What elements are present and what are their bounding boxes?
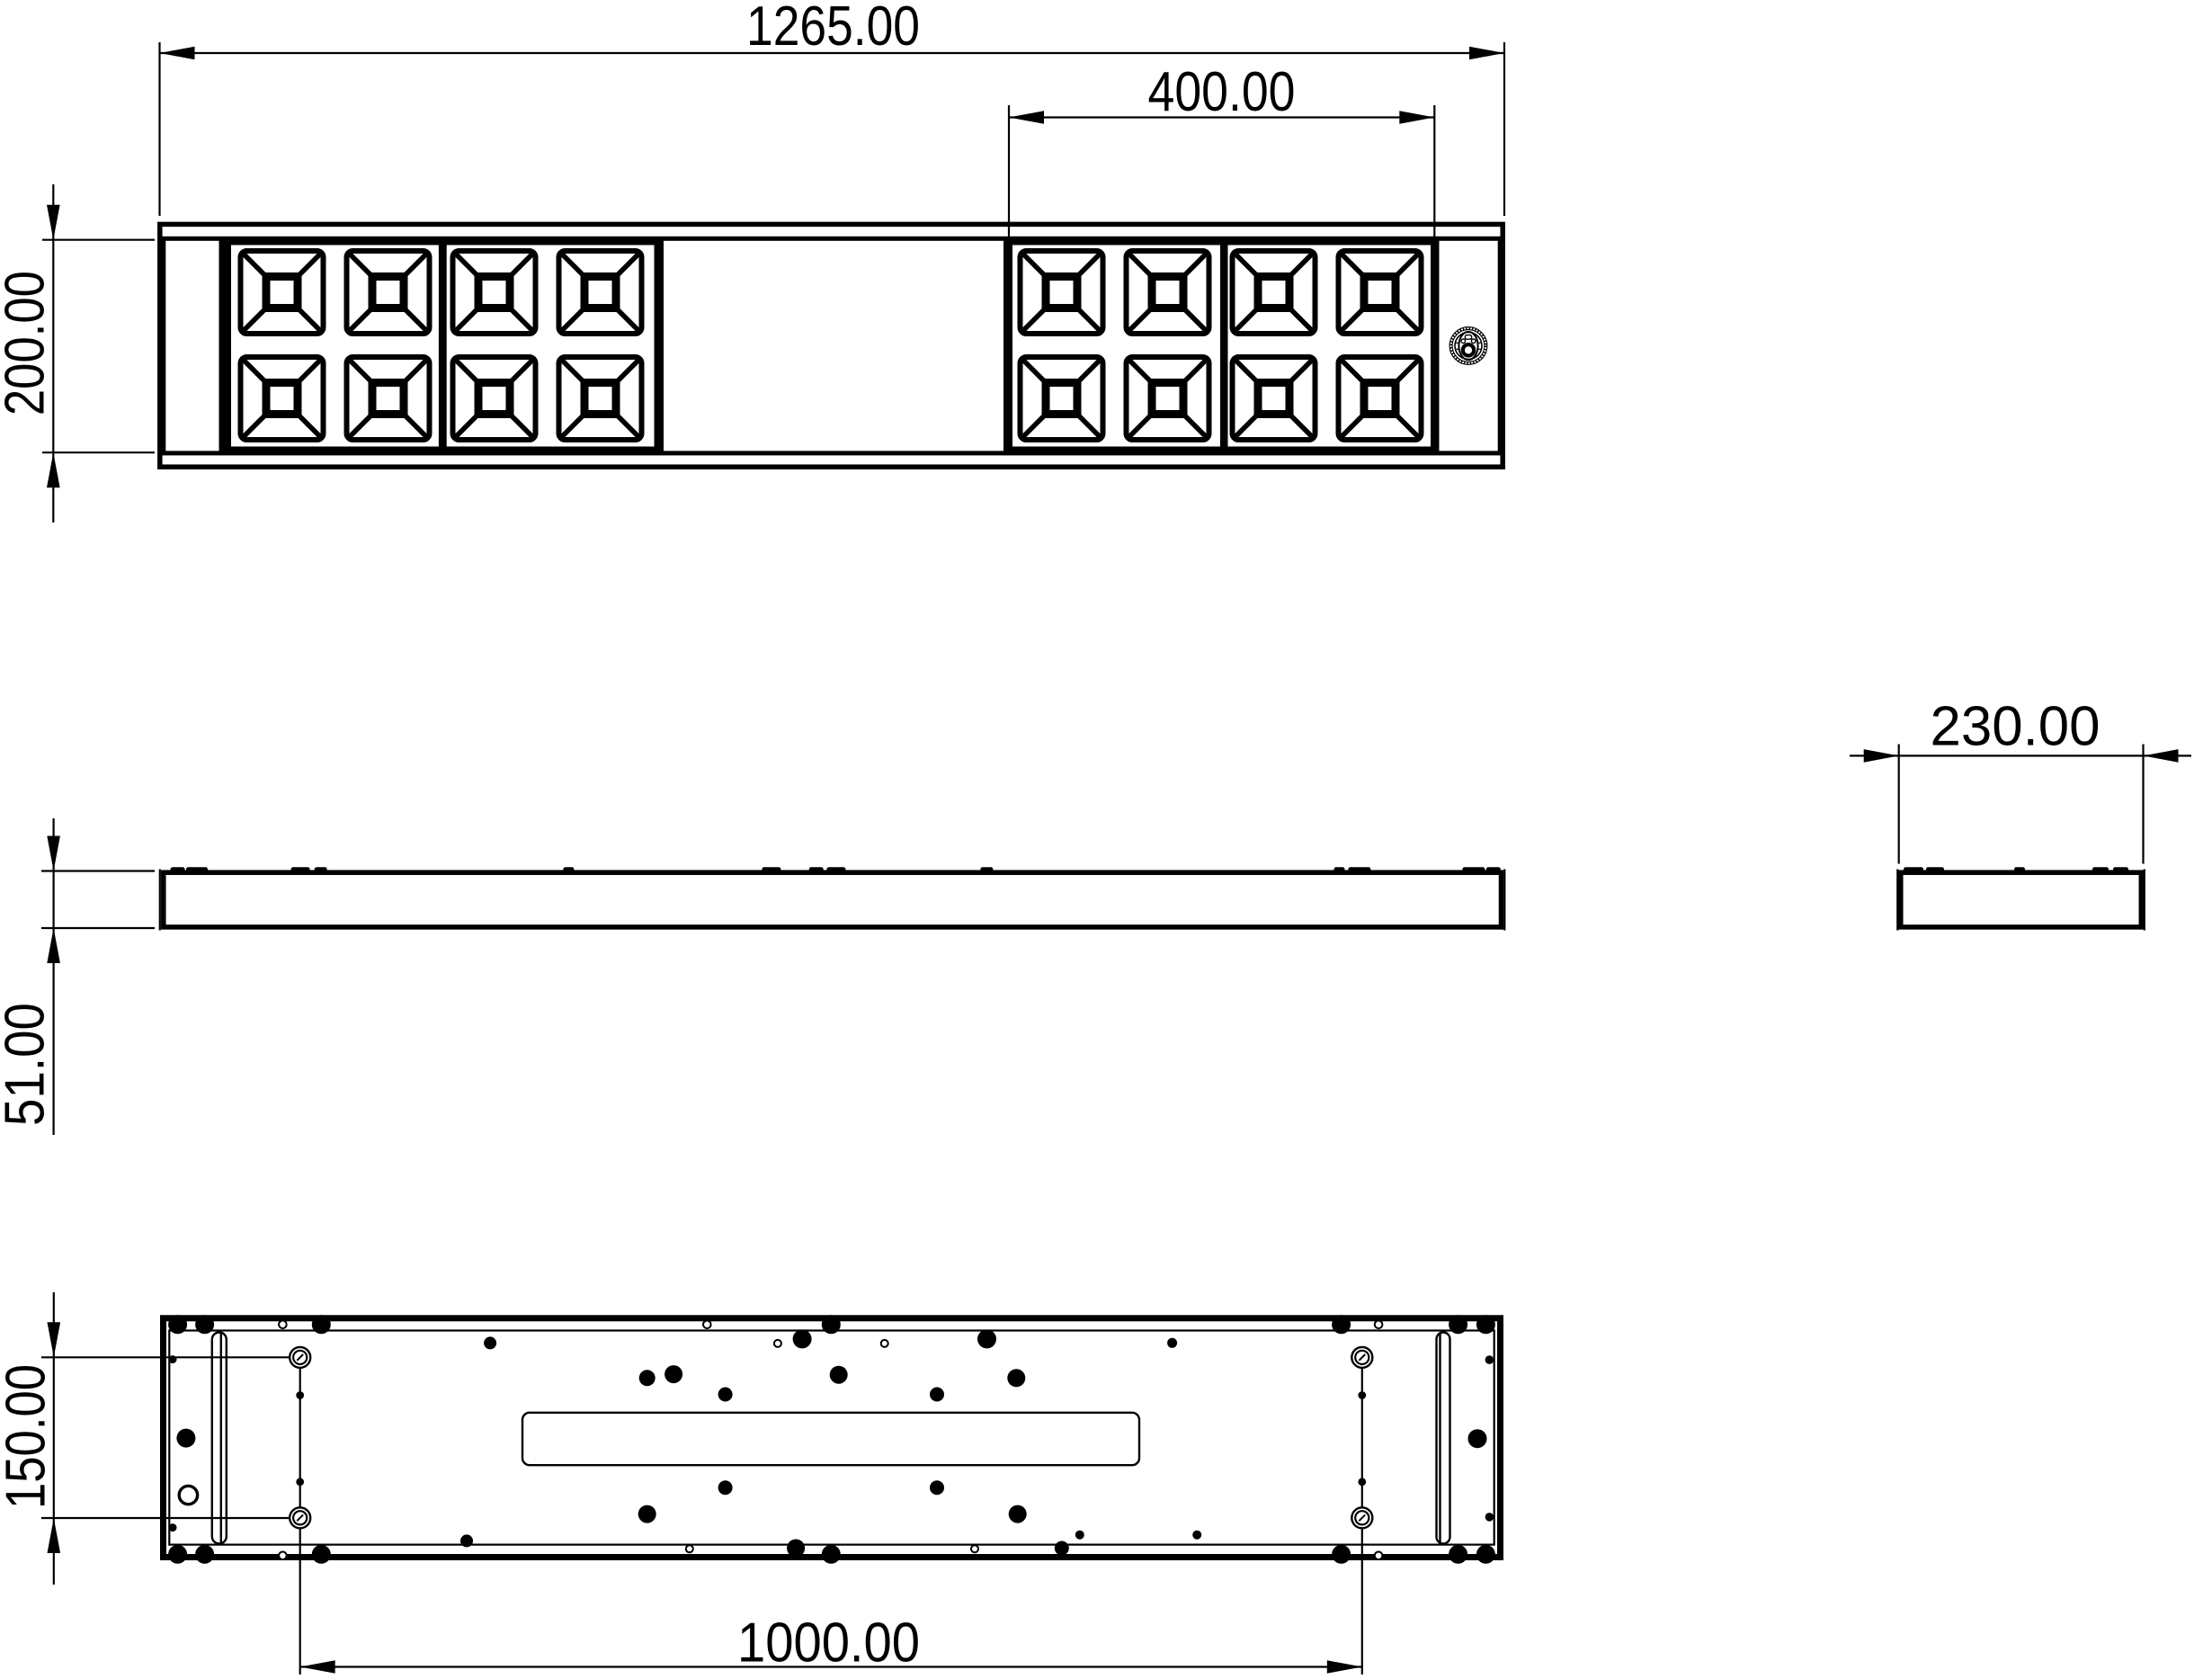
svg-text:150.00: 150.00: [0, 1364, 58, 1509]
svg-text:51.00: 51.00: [0, 1003, 57, 1126]
svg-text:230.00: 230.00: [1931, 696, 2101, 758]
svg-text:1265.00: 1265.00: [746, 0, 920, 58]
svg-text:1000.00: 1000.00: [737, 1612, 920, 1675]
svg-text:400.00: 400.00: [1148, 61, 1296, 123]
svg-text:200.00: 200.00: [0, 271, 57, 415]
